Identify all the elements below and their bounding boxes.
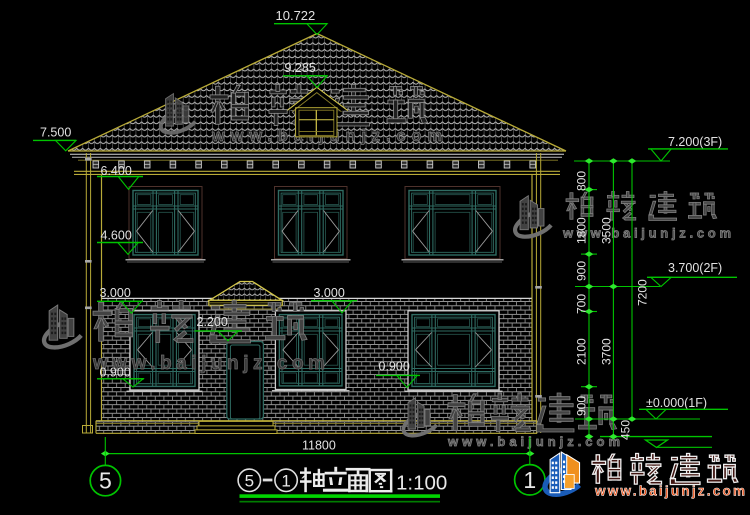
svg-text:7.500: 7.500 xyxy=(40,126,71,140)
svg-text:3.700(2F): 3.700(2F) xyxy=(668,261,722,275)
svg-text:2.200: 2.200 xyxy=(197,315,228,329)
svg-text:1: 1 xyxy=(523,467,536,493)
svg-text:1:100: 1:100 xyxy=(396,472,447,495)
svg-text:900: 900 xyxy=(575,261,589,281)
svg-text:3.000: 3.000 xyxy=(100,286,131,300)
svg-text:800: 800 xyxy=(575,171,589,191)
svg-text:2100: 2100 xyxy=(575,338,589,365)
svg-text:1: 1 xyxy=(281,471,290,490)
svg-text:900: 900 xyxy=(575,396,589,416)
svg-text:3500: 3500 xyxy=(600,217,614,244)
svg-text:5: 5 xyxy=(245,471,254,490)
svg-text:700: 700 xyxy=(575,294,589,314)
svg-text:7.200(3F): 7.200(3F) xyxy=(668,135,722,149)
svg-text:0.900: 0.900 xyxy=(379,360,410,374)
svg-text:3700: 3700 xyxy=(600,338,614,365)
svg-text:0.900: 0.900 xyxy=(100,366,131,380)
svg-text:5: 5 xyxy=(99,468,112,494)
svg-text:7200: 7200 xyxy=(636,279,650,306)
svg-text:1800: 1800 xyxy=(575,217,589,244)
svg-text:450: 450 xyxy=(619,420,633,440)
svg-text:±0.000(1F): ±0.000(1F) xyxy=(646,396,707,410)
svg-text:10.722: 10.722 xyxy=(276,8,316,23)
svg-text:9.285: 9.285 xyxy=(285,61,316,75)
svg-text:11800: 11800 xyxy=(302,439,336,453)
svg-text:3.000: 3.000 xyxy=(314,286,345,300)
svg-text:4.600: 4.600 xyxy=(101,229,132,243)
